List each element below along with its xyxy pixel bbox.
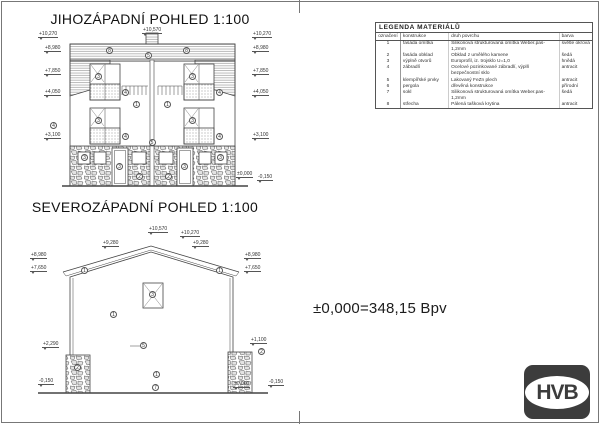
elevation-mark: +8,980 (30, 252, 47, 259)
legend-table: označení konstrukce druh povrchu barva 1… (376, 33, 592, 108)
material-callout: 3 (181, 163, 188, 170)
hvb-logo-oval: HVB (525, 376, 589, 409)
material-callout: 2 (74, 364, 81, 371)
legend-header: konstrukce (400, 33, 448, 41)
elevation-mark: ±0,000 (236, 171, 253, 178)
material-callout: 4 (50, 122, 57, 129)
material-callout: 2 (258, 348, 265, 355)
legend-title: LEGENDA MATERIÁLŮ (376, 23, 592, 33)
legend-cell: 1 (376, 41, 400, 54)
hvb-logo: HVB (524, 365, 590, 419)
legend-cell: Silikonová strukturovaná omítka Weber.pa… (449, 90, 559, 102)
elevation-mark: +10,270 (180, 230, 200, 237)
material-callout: 4 (216, 133, 223, 140)
legend-row: 7 sokl Silikonová strukturovaná omítka W… (376, 90, 592, 102)
elevation-mark: +4,050 (252, 89, 269, 96)
legend-row: 1 fasáda omítka Silikonová strukturovaná… (376, 41, 592, 54)
material-callout: 3 (116, 163, 123, 170)
material-callout: 3 (217, 154, 224, 161)
sw-roof-band (70, 44, 235, 60)
legend-cell: Silikonová strukturovaná omítka Weber.pa… (449, 41, 559, 54)
elevation-mark: -0,150 (38, 378, 54, 385)
material-callout: 3 (81, 154, 88, 161)
legend-cell: šedá (559, 90, 592, 102)
legend-cell: antracit (559, 65, 592, 77)
material-callout: 3 (149, 291, 156, 298)
material-callout: 4 (122, 89, 129, 96)
material-callout: 1 (133, 101, 140, 108)
material-callout: 1 (81, 267, 88, 274)
legend-cell: Pálená tašková krytina (449, 102, 559, 108)
elevation-mark: +4,050 (44, 89, 61, 96)
hvb-logo-text: HVB (536, 382, 577, 403)
material-callout: 3 (95, 73, 102, 80)
legend-cell: 4 (376, 65, 400, 77)
material-callout: 3 (189, 73, 196, 80)
legend-row: 8 střecha Pálená tašková krytina antraci… (376, 102, 592, 108)
elevation-mark: +10,570 (148, 226, 168, 233)
nw-view-title: SEVEROZÁPADNÍ POHLED 1:100 (25, 199, 265, 215)
legend-cell: zábradlí (400, 65, 448, 77)
legend-header-row: označení konstrukce druh povrchu barva (376, 33, 592, 41)
legend-cell: sokl (400, 90, 448, 102)
nw-gable-wall (70, 252, 233, 393)
material-callout: 5 (145, 52, 152, 59)
elevation-mark: +7,650 (244, 265, 261, 272)
materials-legend: LEGENDA MATERIÁLŮ označení konstrukce dr… (375, 22, 593, 109)
legend-header: druh povrchu (449, 33, 559, 41)
sw-elevation (62, 33, 248, 186)
sw-chimney (146, 33, 158, 44)
elevation-mark: +10,270 (252, 31, 272, 38)
elevation-mark: +1,100 (250, 337, 267, 344)
legend-cell: fasáda omítka (400, 41, 448, 54)
elevation-mark: ±0,000 (233, 381, 250, 388)
material-callout: 5 (149, 139, 156, 146)
material-callout: 3 (189, 117, 196, 124)
elevation-mark: +8,980 (244, 252, 261, 259)
material-callout: 4 (122, 133, 129, 140)
material-callout: 8 (183, 47, 190, 54)
legend-row: 4 zábradlí Ocelové pozinkované zábradlí,… (376, 65, 592, 77)
elevation-mark: -0,150 (257, 174, 273, 181)
elevation-mark: +8,980 (44, 45, 61, 52)
material-callout: 2 (165, 173, 172, 180)
legend-header: označení (376, 33, 400, 41)
datum-note: ±0,000=348,15 Bpv (313, 300, 447, 317)
elevation-mark: +2,290 (42, 341, 59, 348)
material-callout: 1 (164, 101, 171, 108)
elevation-mark: +10,270 (38, 31, 58, 38)
material-callout: 1 (153, 371, 160, 378)
sw-view-title: JIHOZÁPADNÍ POHLED 1:100 (40, 11, 260, 27)
elevation-mark: +3,100 (44, 132, 61, 139)
material-callout: 1 (110, 311, 117, 318)
legend-cell: 8 (376, 102, 400, 108)
material-callout: 5 (140, 342, 147, 349)
legend-header: barva (559, 33, 592, 41)
elevation-mark: +9,280 (102, 240, 119, 247)
elevation-mark: +8,980 (252, 45, 269, 52)
elevation-mark: +7,650 (30, 265, 47, 272)
elevation-mark: +10,570 (142, 27, 162, 34)
legend-cell: střecha (400, 102, 448, 108)
elevation-mark: -0,150 (268, 379, 284, 386)
material-callout: 3 (95, 117, 102, 124)
material-callout: 1 (216, 267, 223, 274)
elevation-mark: +3,100 (252, 132, 269, 139)
material-callout: 2 (136, 173, 143, 180)
material-callout: 8 (106, 47, 113, 54)
legend-cell: Ocelové pozinkované zábradlí, výplň bezp… (449, 65, 559, 77)
elevation-mark: +9,280 (192, 240, 209, 247)
material-callout: 7 (152, 384, 159, 391)
nw-stone-pillar-left (66, 355, 90, 393)
elevation-mark: +7,850 (44, 68, 61, 75)
legend-cell: světle okrová (559, 41, 592, 54)
nw-elevation (38, 246, 268, 393)
legend-cell: 7 (376, 90, 400, 102)
elevation-mark: +7,850 (252, 68, 269, 75)
material-callout: 4 (216, 89, 223, 96)
legend-cell: antracit (559, 102, 592, 108)
